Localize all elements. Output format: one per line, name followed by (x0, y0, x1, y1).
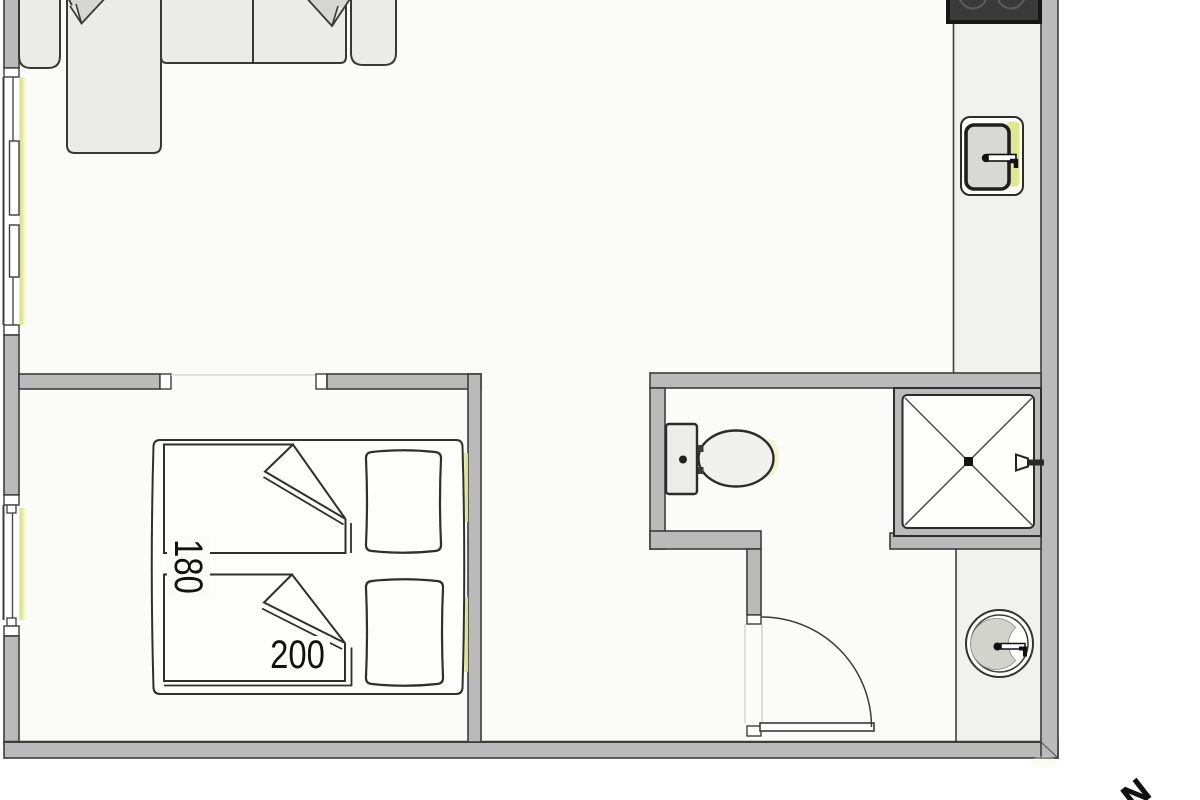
svg-text:200: 200 (270, 632, 325, 677)
svg-text:180: 180 (166, 539, 211, 594)
